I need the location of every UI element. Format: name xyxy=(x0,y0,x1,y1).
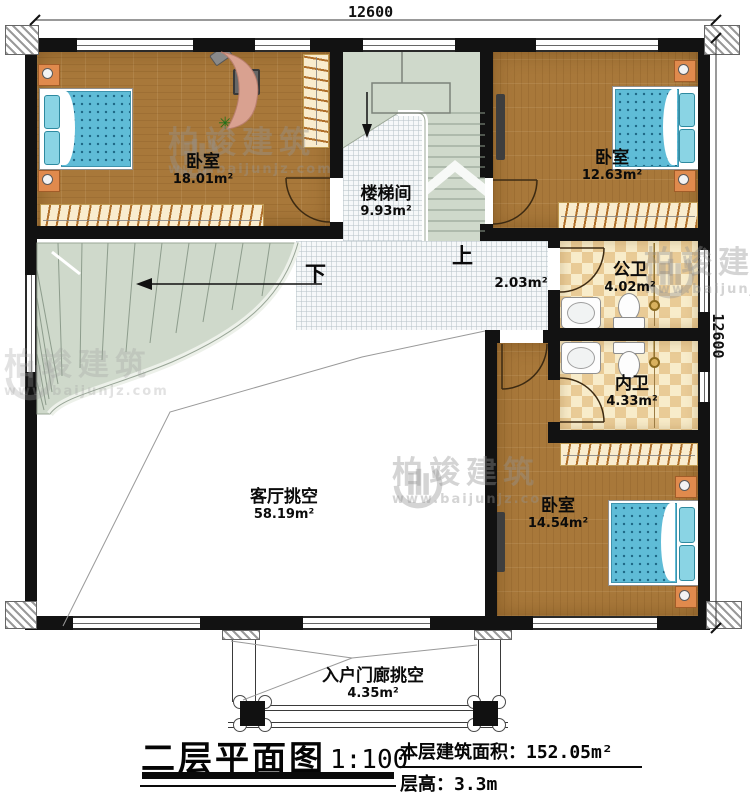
bed-sheet xyxy=(661,503,675,581)
wall-between-baths xyxy=(548,328,710,341)
window xyxy=(363,38,455,52)
window xyxy=(536,38,658,52)
title-underline-thick xyxy=(142,772,394,779)
wall-vestibule-north xyxy=(543,330,548,343)
nightstand xyxy=(38,64,60,86)
dimension-top: 12600 xyxy=(348,3,393,21)
room-name: 卧室 xyxy=(528,496,588,516)
wall-bedroom1-east xyxy=(330,38,343,178)
porch-post-line xyxy=(478,640,479,702)
room-label-bedroom1: 卧室 18.01m² xyxy=(173,152,233,188)
sink-basin xyxy=(567,302,595,324)
room-area: 9.93m² xyxy=(360,204,411,220)
wardrobe xyxy=(303,54,329,148)
floor-height-text: 层高：3.3m xyxy=(400,770,497,796)
porch-column xyxy=(240,701,265,726)
pillow xyxy=(679,545,695,581)
room-label-living-void: 客厅挑空 58.19m² xyxy=(250,487,318,523)
sink xyxy=(561,297,601,329)
nightstand xyxy=(674,170,696,192)
porch-column xyxy=(473,701,498,726)
wall-innerbath-south xyxy=(548,430,710,443)
porch-hatch xyxy=(474,630,512,640)
pillow xyxy=(679,93,695,127)
wall-bedroom2-south xyxy=(480,228,710,241)
corner-hatch xyxy=(704,25,740,55)
bed-sheet xyxy=(663,89,677,165)
floor-plan-page: ✳ xyxy=(0,0,750,804)
nightstand xyxy=(675,476,697,498)
sink-basin xyxy=(567,347,595,369)
nightstand xyxy=(38,170,60,192)
room-area: 4.02m² xyxy=(604,280,655,296)
room-label-porch-void: 入户门廊挑空 4.35m² xyxy=(322,666,424,702)
monitor-icon xyxy=(233,69,260,95)
room-area: 4.35m² xyxy=(322,686,424,702)
room-area: 12.63m² xyxy=(582,168,642,184)
wall-bedroom3-west xyxy=(485,343,497,616)
room-name: 楼梯间 xyxy=(360,184,411,204)
nightstand xyxy=(674,60,696,82)
bed xyxy=(608,500,700,586)
window xyxy=(698,372,710,402)
nightstand xyxy=(675,586,697,608)
stair-up-label: 上 xyxy=(452,240,473,270)
titleblock-divider xyxy=(400,766,642,768)
tv xyxy=(496,512,505,572)
floor-area-text: 本层建筑面积：152.05m² xyxy=(400,738,613,764)
window xyxy=(533,616,657,630)
sink xyxy=(561,342,601,374)
wall-bath-west xyxy=(548,241,560,248)
wall-stairwell-east xyxy=(480,38,493,178)
corner-hatch xyxy=(706,601,742,629)
room-name: 内卫 xyxy=(606,374,657,394)
room-area: 18.01m² xyxy=(173,172,233,188)
room-area: 58.19m² xyxy=(250,507,318,523)
porch-hatch xyxy=(222,630,260,640)
window xyxy=(303,616,430,630)
pillow xyxy=(44,95,60,129)
room-label-public-bath: 公卫 4.02m² xyxy=(604,260,655,296)
window xyxy=(73,616,200,630)
wall-bedroom1-south xyxy=(25,226,343,239)
closet xyxy=(558,202,698,230)
watermark-logo-icon xyxy=(392,458,444,510)
shower-head-icon xyxy=(649,300,660,311)
pillow xyxy=(44,131,60,165)
curved-stair xyxy=(37,243,298,414)
dimension-right: 12600 xyxy=(709,296,727,376)
room-area: 2.03m² xyxy=(494,275,547,291)
stair-down-arrow-icon xyxy=(136,278,322,290)
room-label-stairwell: 楼梯间 9.93m² xyxy=(360,184,411,220)
window xyxy=(77,38,193,52)
room-name: 客厅挑空 xyxy=(250,487,318,507)
room-area: 4.33m² xyxy=(606,394,657,410)
room-label-bedroom2: 卧室 12.63m² xyxy=(582,148,642,184)
pillow xyxy=(679,507,695,543)
room-name: 卧室 xyxy=(173,152,233,172)
stair-down-label: 下 xyxy=(305,258,326,288)
corner-hatch xyxy=(5,601,37,629)
shower-head-icon xyxy=(649,357,660,368)
tv xyxy=(496,94,505,160)
room-label-hall-area: 2.03m² xyxy=(494,275,547,291)
plan-scale: 1:100 xyxy=(330,745,408,775)
room-label-inner-bath: 内卫 4.33m² xyxy=(606,374,657,410)
porch-post-line xyxy=(232,640,233,702)
closet xyxy=(560,443,698,466)
title-underline-thin xyxy=(140,785,396,787)
wall-vestibule-north xyxy=(485,330,500,343)
room-name: 卧室 xyxy=(582,148,642,168)
bed xyxy=(39,88,133,170)
porch-beam-line xyxy=(264,710,474,711)
window xyxy=(25,275,37,372)
window xyxy=(255,38,310,52)
corner-hatch xyxy=(5,25,39,55)
porch-beam-line xyxy=(264,705,474,706)
plant-icon: ✳ xyxy=(218,114,232,134)
pillow xyxy=(679,129,695,163)
room-name: 公卫 xyxy=(604,260,655,280)
room-label-bedroom3: 卧室 14.54m² xyxy=(528,496,588,532)
porch-post-line xyxy=(255,640,256,702)
porch-post-line xyxy=(500,640,501,702)
room-name: 入户门廊挑空 xyxy=(322,666,424,686)
room-area: 14.54m² xyxy=(528,516,588,532)
